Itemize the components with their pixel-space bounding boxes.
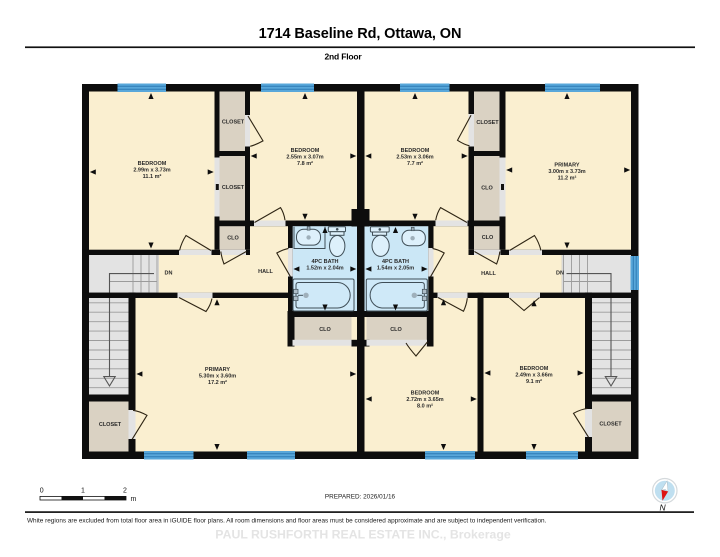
- svg-text:2nd Floor: 2nd Floor: [325, 52, 363, 62]
- svg-text:9.1 m²: 9.1 m²: [526, 378, 542, 385]
- svg-text:7.7 m²: 7.7 m²: [407, 160, 423, 167]
- svg-text:1714 Baseline Rd, Ottawa, ON: 1714 Baseline Rd, Ottawa, ON: [259, 26, 462, 42]
- svg-text:CLOSET: CLOSET: [222, 185, 245, 191]
- svg-text:CLO: CLO: [319, 327, 331, 333]
- svg-text:DN: DN: [165, 271, 173, 277]
- svg-text:0: 0: [40, 488, 44, 495]
- svg-text:BEDROOM: BEDROOM: [291, 148, 320, 154]
- svg-text:BEDROOM: BEDROOM: [411, 391, 440, 397]
- svg-text:1.54m x 2.05m: 1.54m x 2.05m: [377, 266, 414, 272]
- svg-text:DN: DN: [556, 271, 564, 277]
- svg-text:5.30m x 3.60m: 5.30m x 3.60m: [199, 374, 236, 380]
- svg-text:CLO: CLO: [227, 236, 239, 242]
- svg-text:BEDROOM: BEDROOM: [401, 148, 430, 154]
- svg-text:3.00m x 3.73m: 3.00m x 3.73m: [548, 169, 585, 175]
- svg-text:PRIMARY: PRIMARY: [205, 367, 230, 373]
- svg-text:PAUL RUSHFORTH REAL ESTATE INC: PAUL RUSHFORTH REAL ESTATE INC., Brokera…: [215, 528, 511, 542]
- svg-text:4PC BATH: 4PC BATH: [382, 259, 409, 265]
- svg-text:CLO: CLO: [390, 327, 402, 333]
- svg-text:2.49m x 3.66m: 2.49m x 3.66m: [515, 373, 552, 379]
- svg-text:HALL: HALL: [258, 269, 273, 275]
- svg-text:4PC BATH: 4PC BATH: [311, 259, 338, 265]
- svg-text:2.53m x 3.06m: 2.53m x 3.06m: [396, 155, 433, 161]
- svg-text:CLOSET: CLOSET: [222, 120, 245, 126]
- svg-text:CLOSET: CLOSET: [599, 422, 622, 428]
- svg-text:PRIMARY: PRIMARY: [554, 163, 579, 169]
- svg-text:BEDROOM: BEDROOM: [520, 366, 549, 372]
- svg-text:White regions are excluded fro: White regions are excluded from total fl…: [27, 517, 547, 524]
- svg-text:11.2 m²: 11.2 m²: [558, 175, 577, 182]
- svg-text:CLOSET: CLOSET: [476, 120, 499, 126]
- svg-text:2: 2: [123, 488, 127, 495]
- svg-text:7.8 m²: 7.8 m²: [297, 160, 313, 167]
- svg-text:HALL: HALL: [481, 271, 496, 277]
- svg-text:2.99m x 3.73m: 2.99m x 3.73m: [133, 168, 170, 174]
- svg-text:8.0 m²: 8.0 m²: [417, 403, 433, 410]
- svg-text:2.55m x 3.07m: 2.55m x 3.07m: [286, 155, 323, 161]
- svg-text:11.1 m²: 11.1 m²: [143, 173, 162, 180]
- svg-text:m: m: [131, 496, 137, 503]
- svg-text:CLO: CLO: [481, 186, 493, 192]
- svg-text:BEDROOM: BEDROOM: [138, 161, 167, 167]
- svg-text:N: N: [660, 503, 667, 513]
- svg-text:2.72m x 3.65m: 2.72m x 3.65m: [406, 397, 443, 403]
- svg-text:17.2 m²: 17.2 m²: [208, 379, 227, 386]
- svg-text:PREPARED: 2026/01/16: PREPARED: 2026/01/16: [325, 494, 396, 501]
- svg-text:CLOSET: CLOSET: [99, 422, 122, 428]
- svg-text:CLO: CLO: [482, 235, 494, 241]
- svg-text:1: 1: [81, 488, 85, 495]
- svg-text:1.52m x 2.04m: 1.52m x 2.04m: [306, 266, 343, 272]
